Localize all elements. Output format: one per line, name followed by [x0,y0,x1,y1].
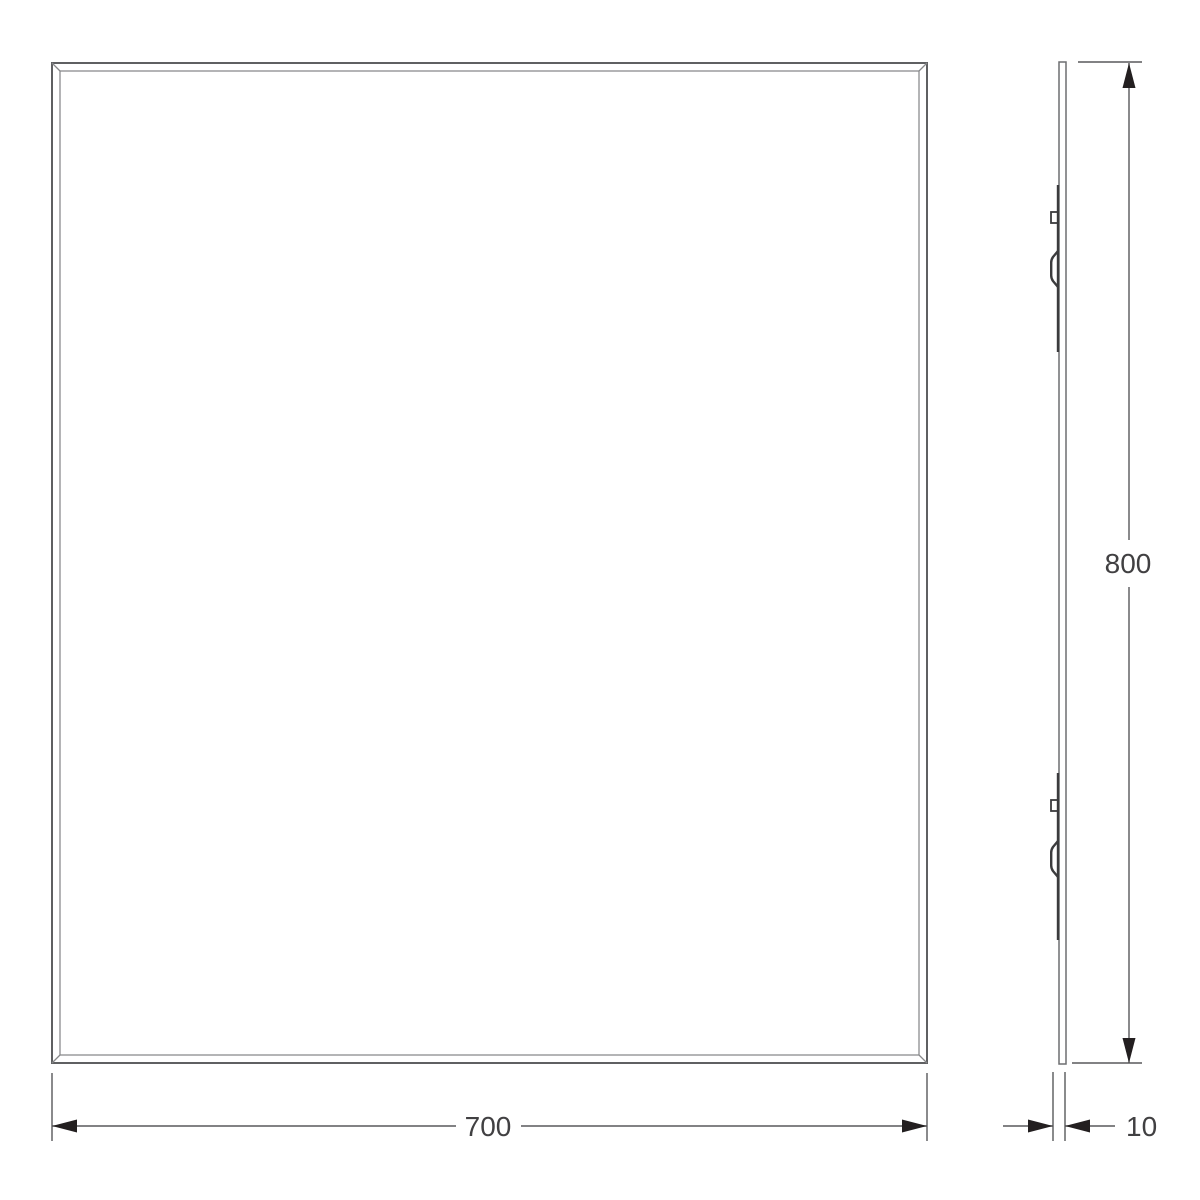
arrow-down-icon [1123,1038,1136,1063]
mirror-dimension-drawing: 800 700 10 [0,0,1200,1200]
arrow-left-icon [52,1120,77,1133]
height-dimension: 800 [1072,62,1151,1063]
side-view-glass-slab [1059,62,1066,1064]
arrow-up-icon [1123,63,1136,88]
bevel-corner-bottom-right [919,1055,927,1063]
arrow-left-inward-icon [1065,1120,1090,1133]
bevel-corner-bottom-left [52,1055,60,1063]
width-dimension-label: 700 [465,1111,512,1142]
lower-mounting-bracket [1051,773,1058,940]
height-dimension-label: 800 [1105,548,1152,579]
side-view [1051,62,1066,1064]
width-dimension: 700 [52,1073,927,1142]
technical-drawing-canvas: 800 700 10 [0,0,1200,1200]
front-view-bevel-inner-edge [60,71,919,1055]
thickness-dimension-label: 10 [1126,1111,1157,1142]
front-view-outer-edge [52,63,927,1063]
arrow-right-inward-icon [1028,1120,1053,1133]
thickness-dimension: 10 [1003,1072,1157,1142]
bevel-corner-top-left [52,63,60,71]
upper-mounting-bracket [1051,185,1058,352]
arrow-right-icon [902,1120,927,1133]
bevel-corner-top-right [919,63,927,71]
front-view [52,63,927,1063]
